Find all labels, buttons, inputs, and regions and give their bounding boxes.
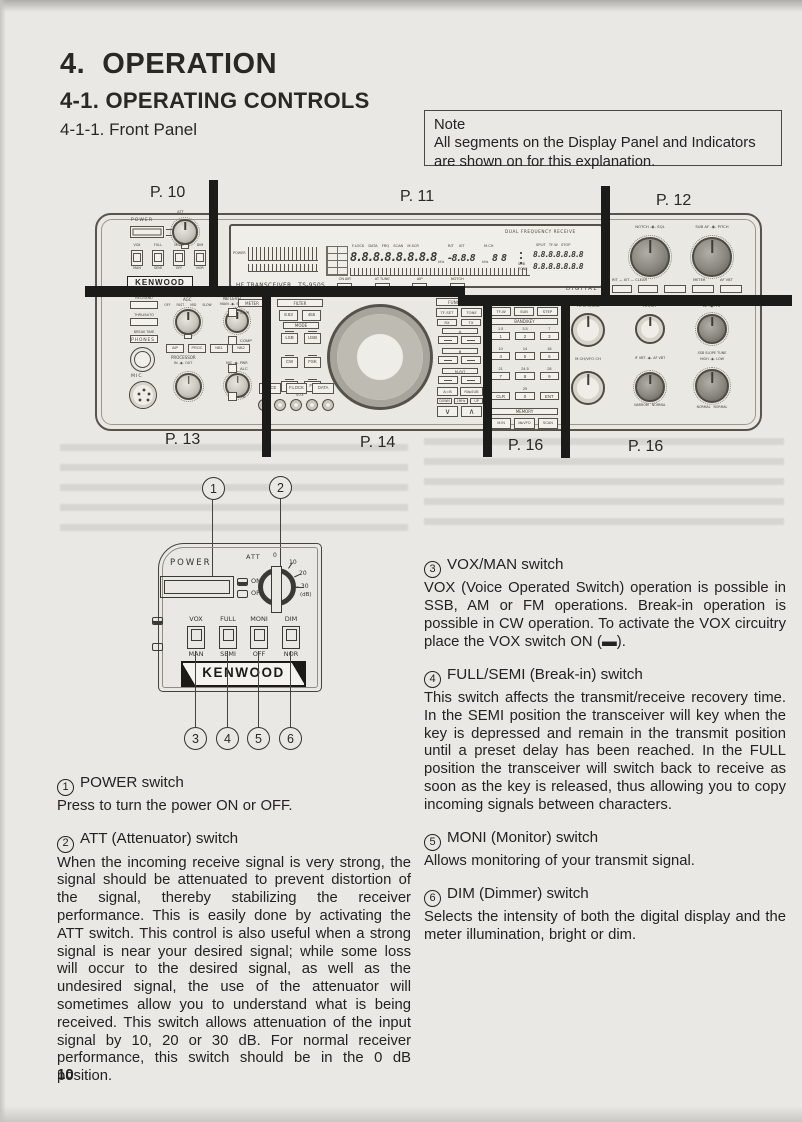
keypad-key-key: ENT	[540, 392, 559, 400]
switch-label-top: FULL	[214, 615, 242, 623]
phones-jack	[130, 347, 155, 372]
keypad-key-key: 6	[540, 352, 559, 360]
signal-bargraph	[350, 268, 530, 276]
panel-button-label: DATA	[318, 385, 329, 390]
voice-flock-data-row: VOICEF.LOCKDATA	[259, 383, 339, 393]
switch-on-icon	[237, 578, 248, 586]
meter-button-label: METER	[693, 279, 705, 283]
kenwood-logo: KENWOOD	[181, 661, 306, 687]
mic-label: MIC	[131, 374, 143, 379]
panel-button	[664, 285, 686, 293]
switch-label-top: DIM	[191, 244, 209, 248]
page-ref: P. 16	[628, 438, 663, 456]
indicator-grid	[326, 246, 348, 276]
vox-row-label: VOX	[280, 394, 320, 398]
processor-sub-label: IN -◉- OUT	[174, 362, 192, 366]
mch-label: M.CH	[484, 245, 493, 249]
power-label: POWER	[170, 558, 212, 568]
panel-button	[720, 285, 742, 293]
panel-button	[638, 285, 658, 293]
power-label: POWER	[131, 218, 153, 223]
rocker-switch	[187, 626, 205, 649]
slope-tune-label: SSB SLOPE TUNE	[686, 352, 738, 356]
control-description: 3VOX/MAN switchVOX (Voice Operated Switc…	[424, 556, 786, 652]
power-button	[160, 576, 234, 598]
section-title: 4. OPERATION	[60, 48, 277, 81]
stack-button: REC/SEND	[124, 296, 164, 309]
section-divider	[209, 180, 218, 290]
band-keypad: 1.513.527310414518621724.58289CLR290ENT	[491, 327, 559, 405]
channel-digits: 8 8	[492, 253, 506, 264]
keypad-key: 73	[540, 327, 559, 345]
round-control	[322, 399, 334, 411]
agc-label: AGC	[183, 298, 192, 302]
page-ref: P. 16	[508, 437, 543, 455]
slope-tune-sub-label: HIGH -◉- LOW	[688, 358, 736, 362]
control-description-title: FULL/SEMI (Break-in) switch	[447, 666, 643, 683]
panel-button-label: F.LOCK	[289, 385, 304, 390]
if-vbt-knob-label: IF VBT -◉- AF VBT	[624, 357, 676, 361]
power-button-face	[164, 580, 230, 594]
band-key-header: BAND/KEY	[491, 318, 558, 325]
slope-tune-bottom-label: NORMAL NORMAL	[686, 406, 738, 410]
keypad-key-key: 4	[491, 352, 510, 360]
rocker-switch	[282, 626, 300, 649]
mode-button-label: LSB	[285, 335, 293, 340]
function-button	[461, 356, 481, 364]
round-control	[290, 399, 302, 411]
keypad-key-key: 8	[515, 372, 534, 380]
att-label: ATT	[246, 553, 261, 561]
section-divider	[262, 295, 271, 457]
stack-button: THRU/AUTO	[124, 313, 164, 326]
dual-frequency-label: DUAL FREQUENCY RECEIVE	[505, 230, 576, 235]
memory-button-label: M.IN	[497, 421, 505, 425]
stack-button-label: BREAK TIME	[134, 330, 154, 335]
filter-header: FILTER	[277, 299, 323, 307]
filter-button-row: 8.83455	[279, 310, 325, 320]
power-button	[130, 226, 164, 238]
switch-label-top: VOX	[128, 244, 146, 248]
panel-button: DATA	[312, 383, 334, 394]
processor-label: PROCESSOR	[171, 356, 196, 360]
control-description-body: Press to turn the power ON or OFF.	[57, 798, 411, 816]
keypad-key: 24.58	[515, 367, 534, 385]
function-button	[438, 336, 458, 344]
tx-vfo-knob	[571, 313, 605, 347]
memory-button: M▸VFO	[514, 418, 534, 429]
callout-6: 6	[279, 727, 302, 750]
control-description-body: This switch affects the transmit/receive…	[424, 690, 786, 815]
round-control	[274, 399, 286, 411]
small-button: PROC	[188, 344, 206, 353]
small-button-label: PROC	[192, 346, 203, 350]
small-button: AIP	[166, 344, 184, 353]
up-label-box: UP	[470, 398, 483, 404]
control-description-title: VOX/MAN switch	[447, 556, 563, 573]
filter-button-label: 455	[308, 312, 315, 317]
control-description-title: POWER switch	[80, 774, 184, 791]
keypad-key-key: 9	[540, 372, 559, 380]
display-indicator-label: AT TUNE	[375, 277, 390, 282]
switch-position-icon	[152, 643, 163, 651]
notch-sql-label: NOTCH -◉- SQL	[626, 225, 674, 229]
function-button	[438, 356, 458, 364]
filter-button-label: 8.83	[284, 312, 293, 317]
left-text-column: 1POWER switchPress to turn the power ON …	[57, 774, 411, 1100]
switch-label-top: MONI	[245, 615, 273, 623]
group-b-label: B	[442, 348, 478, 354]
control-description: 2ATT (Attenuator) switchWhen the incomin…	[57, 830, 411, 1086]
switch-label-bottom: NOR	[191, 267, 209, 271]
keypad-key-key: 0	[515, 392, 534, 400]
page-ref: P. 12	[656, 192, 691, 210]
rit-xit-labels: RIT XIT	[448, 245, 465, 249]
keypad-key: 145	[515, 347, 534, 365]
rit-digits: -8.8.8	[447, 253, 474, 264]
callout-line	[195, 651, 196, 727]
mode-button: FSK	[304, 357, 321, 368]
display-indicator-label: AIP	[417, 277, 423, 282]
meter-select: SWR	[228, 308, 266, 316]
function-button	[461, 376, 481, 384]
meter-select: COMP	[228, 336, 266, 344]
control-description: 5MONI (Monitor) switchAllows monitoring …	[424, 829, 786, 871]
control-description-body: VOX (Voice Operated Switch) operation is…	[424, 580, 786, 651]
control-description-num: 6	[424, 890, 441, 907]
mode-button-label: CW	[286, 359, 293, 364]
down-label-box: DOWN	[437, 398, 452, 404]
split-labels: SPLIT TF-W STOP	[536, 244, 570, 248]
main-tuning-dial	[327, 304, 433, 410]
memory-button-label: M▸VFO	[518, 421, 530, 425]
meter-select-label: TX	[240, 394, 245, 399]
subaf-pitch-label: SUB AF -◉- PITCH	[686, 225, 738, 229]
meter-select-label: COMP	[240, 338, 252, 343]
scan-edge-bottom	[0, 1106, 802, 1122]
switch-label-bottom: OFF	[170, 267, 188, 271]
mode-button: USB	[304, 333, 321, 344]
mic-connector	[129, 381, 157, 409]
status-labels: F.LOCK DATA FRQ SCAN M.SCR	[352, 245, 419, 249]
switch-label-top: DIM	[277, 615, 305, 623]
memory-button: M.IN	[491, 418, 511, 429]
keypad-key: 289	[540, 367, 559, 385]
filter-button: 455	[302, 310, 321, 321]
mhz-label-box: 1MHz	[454, 398, 468, 404]
rocker-switch	[173, 250, 185, 266]
tf-w-button: TF-W	[491, 307, 511, 316]
slope-tune-knob	[695, 369, 729, 403]
callout-1: 1	[202, 477, 225, 500]
function-button	[461, 336, 481, 344]
callout-2: 2	[269, 476, 292, 499]
processor-knob	[175, 373, 202, 400]
page-number: 10	[57, 1066, 74, 1083]
stack-button-label: THRU/AUTO	[134, 313, 154, 318]
switch-label-top: MONI	[170, 244, 188, 248]
mch-vfo-knob	[571, 371, 605, 405]
callout-5: 5	[247, 727, 270, 750]
if-vbt-knob	[635, 372, 665, 402]
meter-select: ALC	[228, 364, 266, 372]
control-description-title: ATT (Attenuator) switch	[80, 830, 238, 847]
chevron-down-icon: ∨	[437, 406, 458, 417]
keypad-key-key: 5	[515, 352, 534, 360]
control-description: 4FULL/SEMI (Break-in) switchThis switch …	[424, 666, 786, 815]
memory-button: SCAN	[538, 418, 558, 429]
switch-label-bottom: MAN	[128, 267, 146, 271]
control-description-body: When the incoming receive signal is very…	[57, 855, 411, 1086]
manual-page: 4. OPERATION 4-1. OPERATING CONTROLS 4-1…	[0, 0, 802, 1122]
page-ref: P. 10	[150, 184, 185, 202]
callout-line	[258, 651, 259, 727]
control-description-title: MONI (Monitor) switch	[447, 829, 598, 846]
agc-knob-tab	[184, 334, 192, 339]
section-divider	[561, 298, 570, 458]
control-description-num: 3	[424, 561, 441, 578]
att-label: ATT	[177, 210, 184, 214]
switch-label-bottom: SEMI	[149, 267, 167, 271]
tf-set-button: TF-SET	[436, 308, 458, 317]
page-ref: P. 11	[400, 188, 434, 206]
section-divider	[601, 186, 610, 296]
subaf-pitch-knob	[692, 237, 732, 277]
callout-3: 3	[184, 727, 207, 750]
note-title: Note	[434, 116, 772, 134]
callout-line	[290, 651, 291, 727]
keypad-key: CLR	[491, 387, 510, 405]
keypad-key: 186	[540, 347, 559, 365]
main-frequency-digits: 8.8.8.8.8.8.8.8	[350, 250, 436, 264]
rocker-switch	[131, 250, 143, 266]
small-button-label: NB1	[215, 346, 222, 350]
memory-header: MEMORY	[491, 408, 558, 415]
round-control	[306, 399, 318, 411]
chevron-up-icon: ∧	[461, 406, 482, 417]
switch-label-top: FULL	[149, 244, 167, 248]
section-divider	[458, 295, 792, 306]
keypad-key: 3.52	[515, 327, 534, 345]
mode-button-label: USB	[308, 335, 317, 340]
rit-xit-knob	[635, 314, 665, 344]
if-vbt-sub-label: NARROW NORMAL	[626, 404, 674, 408]
note-box: Note All segments on the Display Panel a…	[424, 110, 782, 166]
switch-off-icon	[237, 590, 248, 598]
subsection-title: 4-1. OPERATING CONTROLS	[60, 88, 370, 114]
callout-line	[227, 651, 228, 727]
group-a-label: A	[442, 328, 478, 334]
phones-label: PHONES	[131, 338, 155, 343]
meter-scale-2	[248, 264, 318, 272]
att-knob-pointer	[271, 566, 282, 613]
mode-button: LSB	[281, 333, 298, 344]
rit-xit-clear-label: RIT — XIT — CLEAR	[612, 279, 647, 283]
control-description-title: DIM (Dimmer) switch	[447, 885, 589, 902]
note-body: All segments on the Display Panel and In…	[434, 134, 772, 171]
digital-label: DIGITAL	[566, 286, 598, 292]
sub-button: SUB	[514, 307, 534, 316]
meter-select-label: ALC	[240, 366, 248, 371]
section-divider	[85, 286, 465, 297]
afvbt-button-label: AF VBT	[720, 279, 733, 283]
keypad-key-key: 7	[491, 372, 510, 380]
control-description: 1POWER switchPress to turn the power ON …	[57, 774, 411, 816]
step-button: STEP	[537, 307, 558, 316]
keypad-key-key: CLR	[491, 392, 510, 400]
page-ref: P. 14	[360, 434, 395, 452]
switch-label-top: VOX	[182, 615, 210, 623]
af-rf-knob	[697, 314, 727, 344]
mode-button: CW	[281, 357, 298, 368]
section-divider	[483, 295, 492, 457]
keypad-key-key: 3	[540, 332, 559, 340]
keypad-key: 290	[515, 387, 534, 405]
callout-4: 4	[216, 727, 239, 750]
rocker-switch	[250, 626, 268, 649]
sub-digits-top: 8.8.8.8.8.8.8	[533, 250, 583, 259]
agc-knob	[175, 309, 201, 335]
att-tick	[296, 587, 304, 588]
control-description-num: 2	[57, 836, 74, 853]
rocker-switch	[152, 250, 164, 266]
right-text-column: 3VOX/MAN switchVOX (Voice Operated Switc…	[424, 556, 786, 959]
small-button-label: AIP	[172, 346, 178, 350]
att-scale-db: (dB)	[300, 592, 312, 598]
group-mrit-label: M.RIT	[442, 368, 478, 374]
tone-button: TONE	[461, 308, 482, 317]
page-ref: P. 13	[165, 431, 200, 449]
notch-sql-knob	[630, 237, 670, 277]
meter-power-label: POWER	[233, 252, 246, 256]
memory-button-row: M.INM▸VFOSCAN	[491, 418, 561, 428]
small-button: NB1	[210, 344, 228, 353]
panel-button	[612, 285, 632, 293]
sub-digits-bottom: 8.8.8.8.8.8.8	[533, 262, 583, 271]
control-description-num: 5	[424, 834, 441, 851]
scan-edge-top	[0, 0, 802, 12]
khz-label: kHz	[482, 261, 488, 265]
meter-scale	[248, 247, 318, 261]
khz-label: kHz	[438, 261, 444, 265]
keypad-key: 217	[491, 367, 510, 385]
display-indicator-label: NOTCH	[451, 277, 464, 282]
rocker-switch	[194, 250, 206, 266]
switch-position-icon	[152, 617, 163, 625]
att-knob	[172, 219, 198, 245]
bleedthrough-text	[60, 444, 408, 534]
control-description-body: Allows monitoring of your transmit signa…	[424, 853, 786, 871]
subsubsection-title: 4-1-1. Front Panel	[60, 120, 197, 140]
function-button	[438, 376, 458, 384]
display-indicator-label: ON AIR	[339, 277, 351, 282]
a-equals-b-button: A=B	[437, 387, 458, 396]
scan-edge-left	[0, 0, 6, 1122]
filter-button: 8.83	[279, 310, 298, 321]
memory-button-label: SCAN	[543, 421, 553, 425]
keypad-key: 1.51	[491, 327, 510, 345]
rx-sub-button: RX▸SUB	[460, 387, 483, 396]
mode-header: MODE	[283, 322, 319, 329]
att-scale-0: 0	[273, 552, 277, 559]
control-description-body: Selects the intensity of both the digita…	[424, 909, 786, 945]
control-description-num: 1	[57, 779, 74, 796]
rocker-switch	[219, 626, 237, 649]
mode-button-label: FSK	[308, 359, 317, 364]
tx-label-box: TX	[461, 319, 481, 326]
keypad-key-key: 1	[491, 332, 510, 340]
control-description-num: 4	[424, 671, 441, 688]
keypad-key: ENT	[540, 387, 559, 405]
meter-select-label: SWR	[240, 310, 249, 315]
keypad-key: 104	[491, 347, 510, 365]
panel-button	[692, 285, 714, 293]
keypad-key-key: 2	[515, 332, 534, 340]
bleedthrough-text	[424, 438, 784, 536]
control-description: 6DIM (Dimmer) switchSelects the intensit…	[424, 885, 786, 945]
rx-label-box: RX	[437, 319, 457, 326]
